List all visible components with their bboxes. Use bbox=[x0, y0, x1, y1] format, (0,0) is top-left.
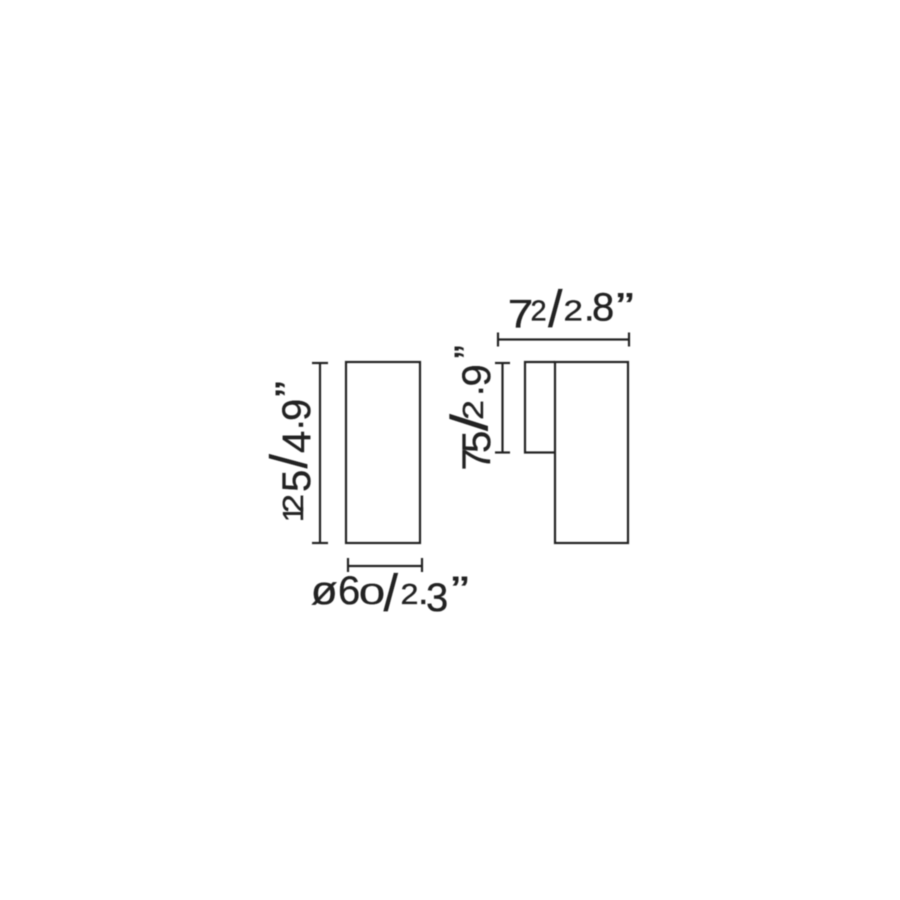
svg-text:9: 9 bbox=[455, 364, 499, 386]
svg-text:/: / bbox=[384, 565, 399, 623]
svg-text:”: ” bbox=[616, 286, 634, 330]
svg-text:2: 2 bbox=[278, 494, 310, 513]
svg-text:4: 4 bbox=[275, 431, 319, 453]
svg-text:2: 2 bbox=[458, 400, 490, 420]
svg-text:8: 8 bbox=[592, 286, 614, 330]
svg-text:ø: ø bbox=[311, 568, 338, 613]
svg-text:”: ” bbox=[268, 381, 312, 397]
svg-text:/: / bbox=[548, 281, 563, 339]
svg-text:9: 9 bbox=[275, 399, 319, 421]
svg-text:/: / bbox=[261, 454, 319, 469]
svg-text:2: 2 bbox=[401, 579, 419, 611]
svg-text:6: 6 bbox=[338, 569, 360, 613]
svg-text:2: 2 bbox=[531, 296, 547, 328]
svg-text:5: 5 bbox=[455, 431, 499, 453]
svg-text:”: ” bbox=[451, 569, 469, 613]
svg-text:0: 0 bbox=[359, 579, 385, 611]
svg-text:5: 5 bbox=[275, 470, 319, 492]
svg-text:”: ” bbox=[447, 345, 491, 358]
svg-text:2: 2 bbox=[564, 294, 583, 327]
svg-text:3: 3 bbox=[426, 576, 448, 620]
